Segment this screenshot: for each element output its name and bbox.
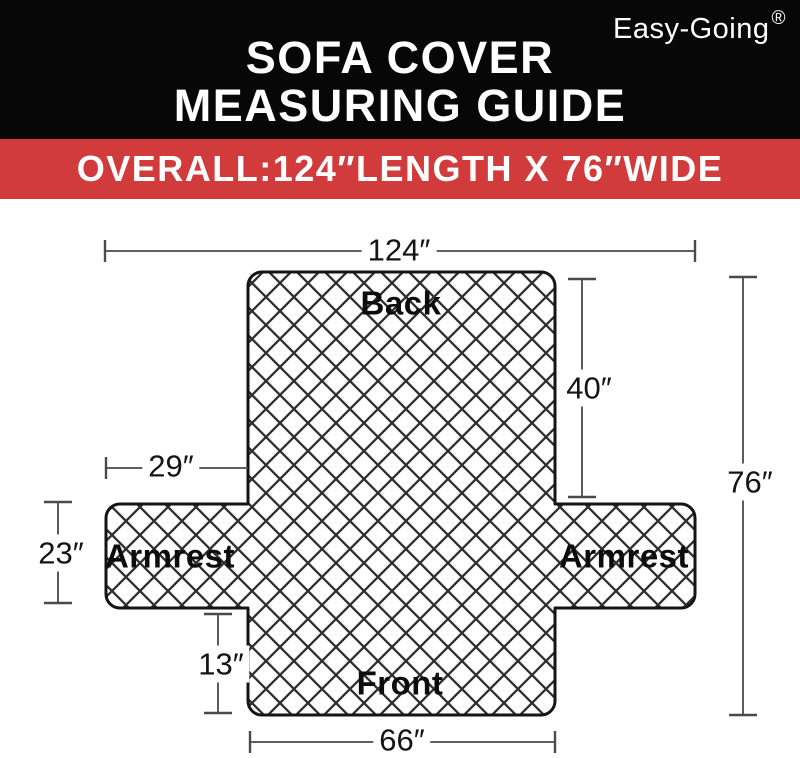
registered-trademark-icon: ® [772, 8, 787, 29]
dim-front-width: 66″ [373, 722, 430, 758]
overall-size-text: OVERALL:124″LENGTH X 76″WIDE [77, 148, 724, 190]
title-line-1: SOFA COVER [0, 34, 800, 82]
dim-overall-length: 124″ [362, 232, 437, 269]
dim-back-height: 40″ [560, 370, 617, 407]
dim-armrest-length: 29″ [142, 448, 199, 485]
overall-size-banner: OVERALL:124″LENGTH X 76″WIDE [0, 139, 800, 199]
armrest-left-label: Armrest [105, 540, 235, 573]
armrest-right-label: Armrest [559, 540, 689, 573]
front-label: Front [357, 667, 444, 700]
dim-armrest-height: 23″ [32, 535, 89, 572]
back-label: Back [361, 287, 442, 320]
page: Easy-Going® SOFA COVER MEASURING GUIDE O… [0, 0, 800, 758]
title-line-2: MEASURING GUIDE [0, 82, 800, 130]
page-title: SOFA COVER MEASURING GUIDE [0, 34, 800, 130]
dim-overall-width: 76″ [721, 464, 778, 501]
measuring-diagram: Back Armrest Armrest Front 124″ 40″ 76″ … [0, 199, 800, 758]
dim-front-height: 13″ [192, 646, 249, 683]
header: Easy-Going® SOFA COVER MEASURING GUIDE [0, 0, 800, 139]
